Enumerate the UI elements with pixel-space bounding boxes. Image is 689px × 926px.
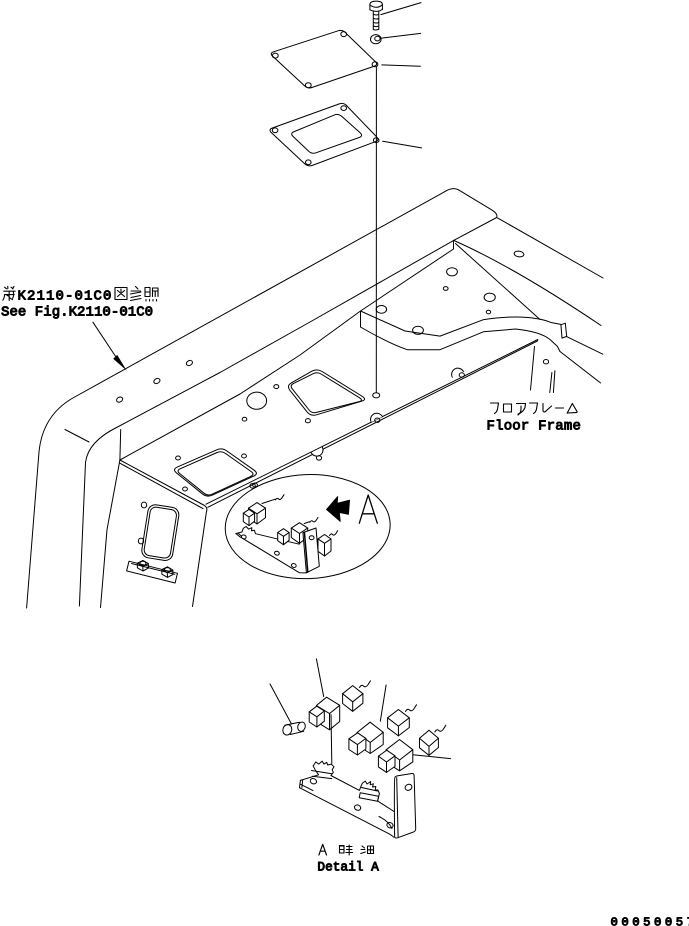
svg-text:See Fig.K2110-01C0: See Fig.K2110-01C0 bbox=[1, 305, 153, 321]
svg-text:Detail A: Detail A bbox=[317, 860, 379, 875]
svg-text:Floor Frame: Floor Frame bbox=[487, 418, 582, 434]
svg-text:K2110-01C0: K2110-01C0 bbox=[18, 289, 113, 305]
svg-text:00050057: 00050057 bbox=[611, 916, 689, 926]
